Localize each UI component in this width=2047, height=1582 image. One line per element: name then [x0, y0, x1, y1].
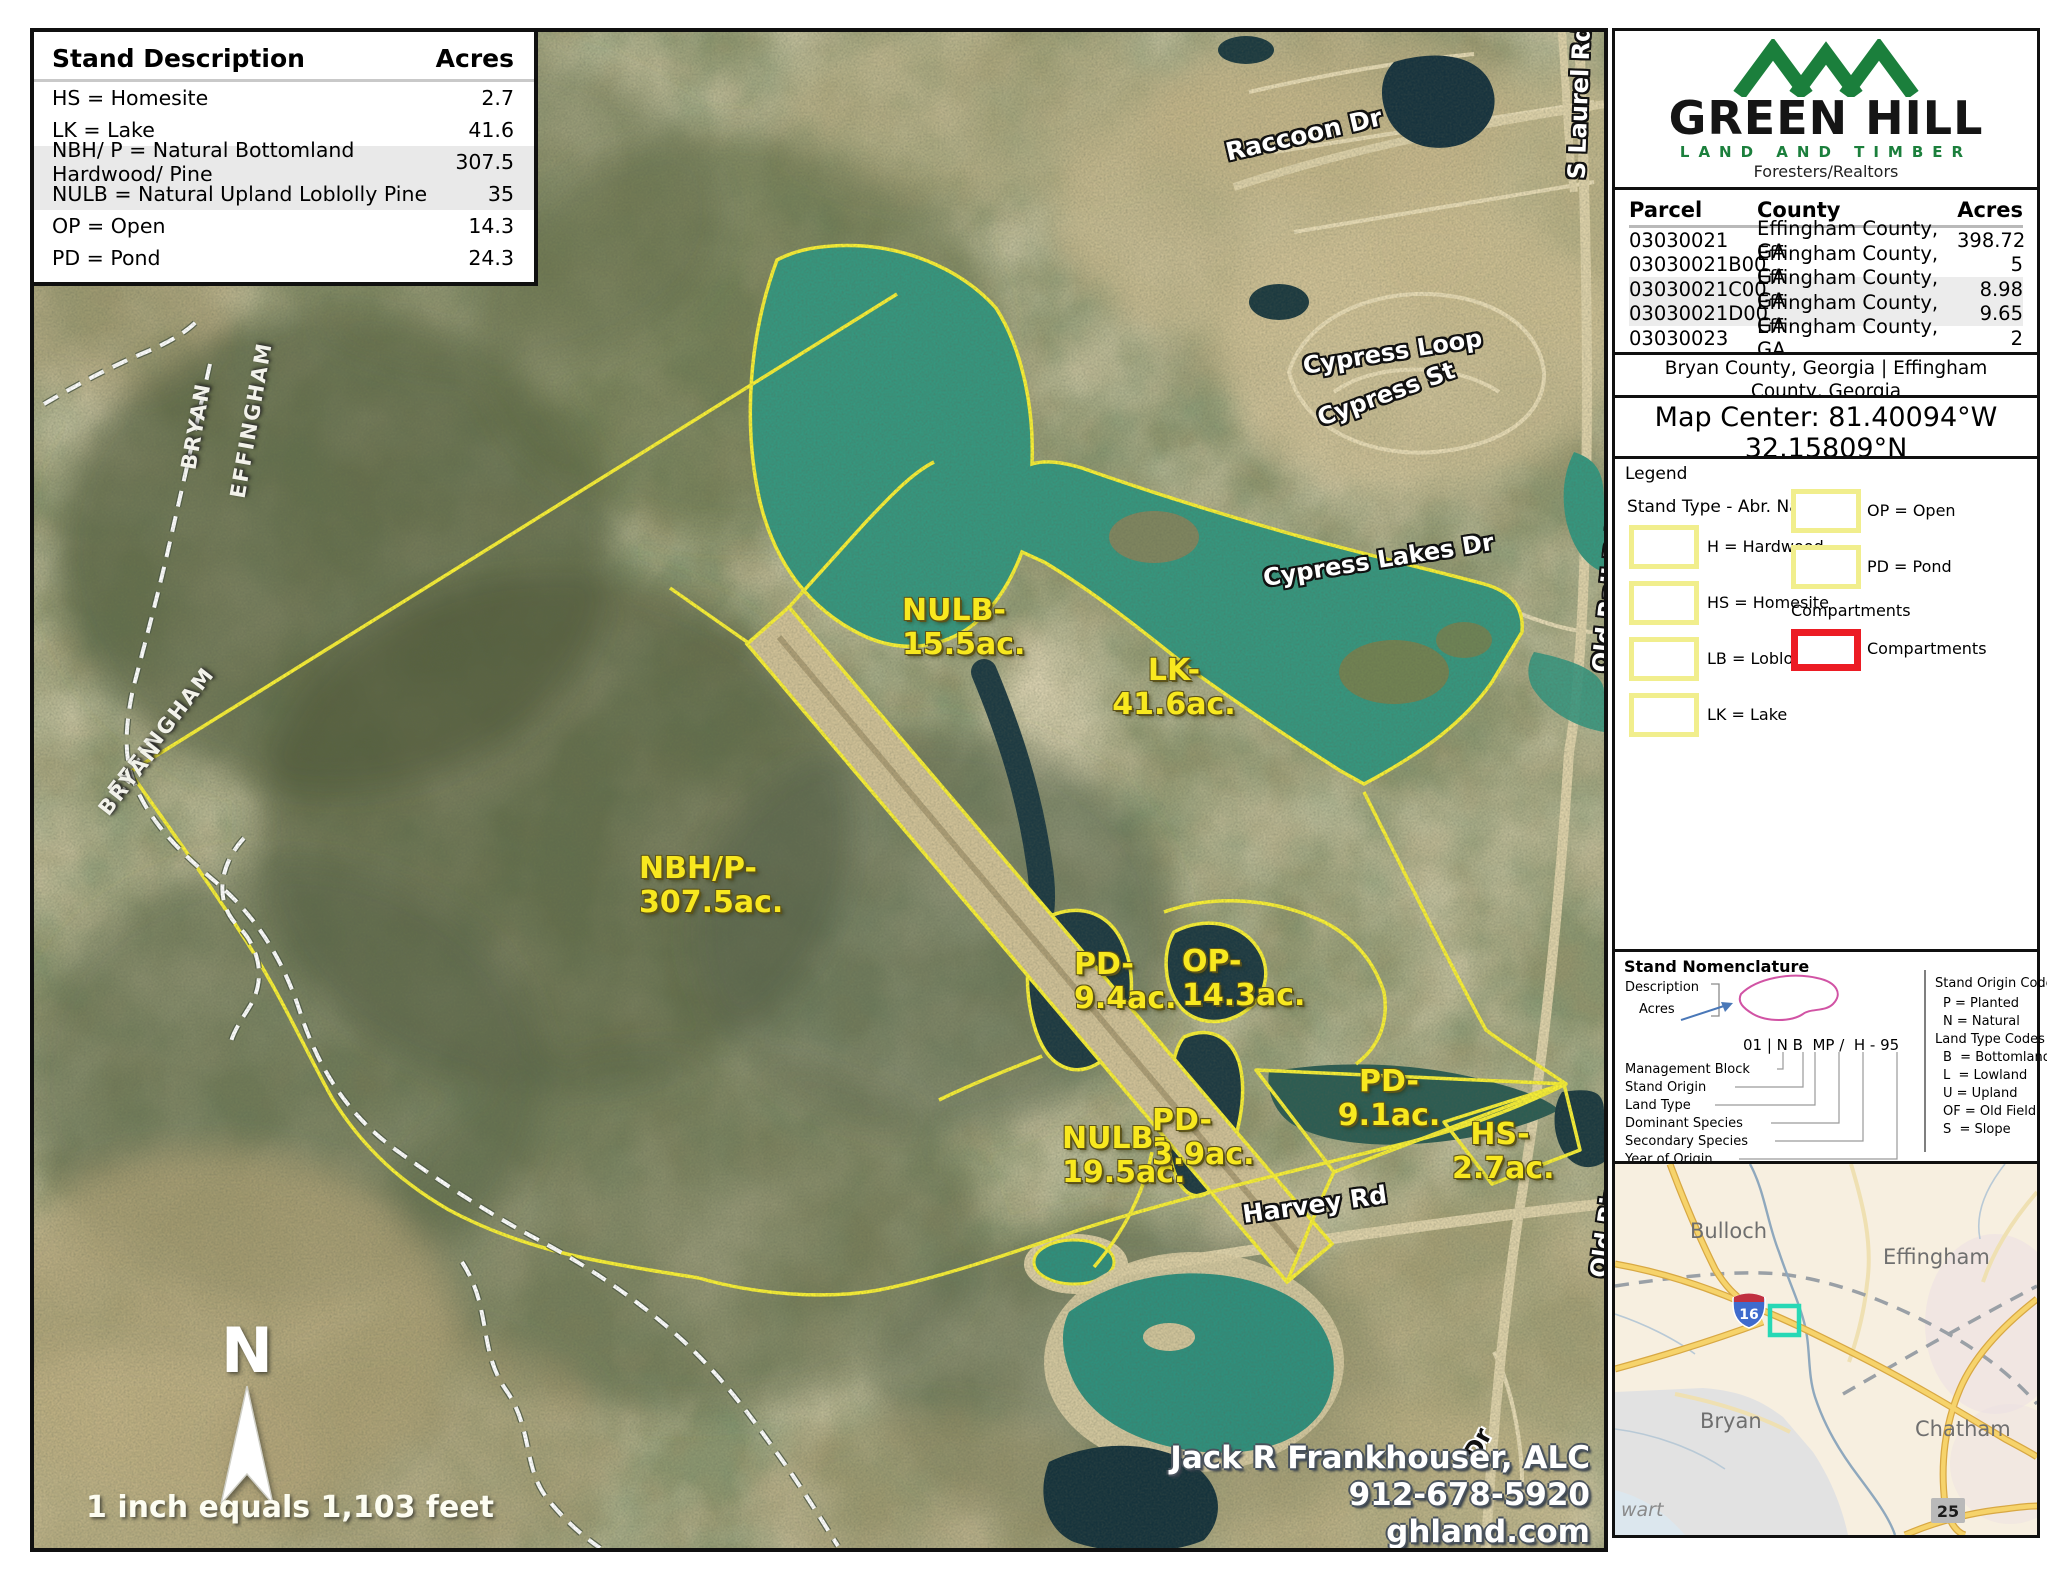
logo-box: GREEN HILL LAND AND TIMBER Foresters/Rea… [1612, 28, 2040, 190]
stand-nomenclature-box: Stand Nomenclature [1612, 949, 2040, 1164]
stand-label-line: 3.9ac. [1152, 1138, 1255, 1172]
stand-label-line: 9.1ac. [1329, 1099, 1449, 1133]
map-sheet: NULB- 15.5ac. LK- 41.6ac. NBH/P- 307.5ac… [0, 0, 2047, 1582]
table-row: 03030023 Effingham County, GA 2 [1629, 326, 2023, 351]
stand-label-nbhp-307: NBH/P- 307.5ac. [639, 852, 783, 919]
stand-row-acres: 14.3 [468, 214, 514, 238]
land-code: B = Bottomland [1943, 1050, 2047, 1065]
nomenclature-description-label: Description [1625, 980, 1699, 995]
nomenclature-label: Dominant Species [1625, 1116, 1743, 1131]
origin-code: N = Natural [1943, 1014, 2020, 1029]
legend-box: Legend Stand Type - Abr. Name H = Hardwo… [1612, 456, 2040, 952]
table-row: HS = Homesite 2.7 [34, 82, 534, 114]
parcel-acres: 9.65 [1957, 302, 2023, 325]
stand-row-label: PD = Pond [52, 246, 161, 270]
route-25-badge: 25 [1931, 1498, 1965, 1523]
stand-table-acres-header: Acres [436, 44, 514, 73]
stand-row-label: NBH/ P = Natural Bottomland Hardwood/ Pi… [52, 138, 447, 186]
acres-header: Acres [1957, 198, 2023, 222]
counties-line1: Bryan County, Georgia | Effingham [1615, 358, 2037, 381]
stand-description-table: Stand Description Acres HS = Homesite 2.… [30, 28, 538, 286]
origin-codes-title: Stand Origin Codes [1935, 976, 2047, 991]
inset-county-bulloch: Bulloch [1690, 1219, 1767, 1243]
table-row: NBH/ P = Natural Bottomland Hardwood/ Pi… [34, 146, 534, 178]
parcel-acres: 2 [1957, 327, 2023, 350]
land-code: L = Lowland [1943, 1068, 2027, 1083]
stand-label-line: 307.5ac. [639, 886, 783, 920]
counties-box: Bryan County, Georgia | Effingham County… [1612, 352, 2040, 398]
stand-row-acres: 2.7 [481, 86, 514, 110]
north-arrow-label: N [202, 1320, 292, 1382]
parcel-id: 03030021B00 [1629, 253, 1757, 276]
legend-item: Compartments [1867, 639, 1987, 658]
stand-label-op-143: OP- 14.3ac. [1182, 945, 1305, 1012]
parcel-acres: 398.72 [1957, 229, 2023, 252]
parcel-id: 03030023 [1629, 327, 1757, 350]
route-25-number: 25 [1937, 1502, 1959, 1521]
legend-swatch-loblolly [1629, 637, 1699, 681]
nomenclature-label: Stand Origin [1625, 1080, 1706, 1095]
parcel-id: 03030021D00 [1629, 302, 1757, 325]
parcel-acres: 5 [1957, 253, 2023, 276]
contact-phone: 912-678-5920 [1170, 1477, 1590, 1514]
land-codes-title: Land Type Codes [1935, 1032, 2045, 1047]
legend-title: Legend [1625, 464, 1687, 484]
legend-swatch-open [1791, 489, 1861, 533]
stand-row-label: NULB = Natural Upland Loblolly Pine [52, 182, 427, 206]
nomenclature-label: Secondary Species [1625, 1134, 1748, 1149]
land-code: OF = Old Field [1943, 1104, 2036, 1119]
stand-label-hs-27: HS- 2.7ac. [1452, 1118, 1548, 1185]
stand-label-line: 41.6ac. [1109, 688, 1239, 722]
stand-table-title: Stand Description [52, 44, 305, 73]
legend-item: LK = Lake [1707, 705, 1787, 724]
stand-label-line: NBH/P- [639, 852, 783, 886]
stand-label-line: OP- [1182, 945, 1305, 979]
stand-label-line: LK- [1109, 654, 1239, 688]
legend-compartments-heading: Compartments [1791, 601, 1911, 620]
stand-label-line: NULB- [902, 594, 1025, 628]
legend-item: PD = Pond [1867, 557, 1952, 576]
inset-county-bryan: Bryan [1700, 1409, 1762, 1433]
mountains-logo-icon [1731, 39, 1921, 97]
stand-table-header: Stand Description Acres [34, 40, 534, 82]
parcel-header: Parcel [1629, 198, 1757, 222]
stand-label-lk-41: LK- 41.6ac. [1109, 654, 1239, 721]
road-label-s-laurel-rd: S Laurel Rd [1563, 28, 1596, 180]
parcel-id: 03030021C00 [1629, 278, 1757, 301]
legend-swatch-pond [1791, 545, 1861, 589]
stand-label-line: 2.7ac. [1452, 1152, 1548, 1186]
legend-swatch-lake [1629, 693, 1699, 737]
inset-partial-label: wart [1621, 1499, 1665, 1521]
stand-label-nulb-15: NULB- 15.5ac. [902, 594, 1025, 661]
legend-swatch-compartments [1791, 629, 1861, 671]
land-code: U = Upland [1943, 1086, 2018, 1101]
legend-swatch-homesite [1629, 581, 1699, 625]
stand-row-acres: 307.5 [455, 150, 514, 174]
stand-label-line: PD- [1074, 948, 1177, 982]
stand-label-line: HS- [1452, 1118, 1548, 1152]
stand-row-acres: 41.6 [468, 118, 514, 142]
nomenclature-code: 01 | N B MP / H - 95 [1743, 1036, 1899, 1054]
interstate-16-number: 16 [1739, 1307, 1758, 1323]
nomenclature-acres-label: Acres [1639, 1002, 1675, 1017]
stand-label-line: 9.4ac. [1074, 982, 1177, 1016]
legend-swatch-hardwood [1629, 525, 1699, 569]
stand-label-line: 15.5ac. [902, 628, 1025, 662]
stand-label-line: PD- [1152, 1104, 1255, 1138]
info-panel: GREEN HILL LAND AND TIMBER Foresters/Rea… [1612, 28, 2040, 1538]
origin-code: P = Planted [1943, 996, 2019, 1011]
nomenclature-label: Management Block [1625, 1062, 1750, 1077]
table-row: NULB = Natural Upland Loblolly Pine 35 [34, 178, 534, 210]
inset-county-effingham: Effingham [1883, 1245, 1990, 1269]
brand-name: GREEN HILL [1615, 95, 2037, 141]
land-code: S = Slope [1943, 1122, 2011, 1137]
nomenclature-label: Land Type [1625, 1098, 1691, 1113]
brand-tagline: Foresters/Realtors [1615, 162, 2037, 181]
inset-locator-map: Bulloch Effingham Bryan Chatham wart 16 … [1612, 1161, 2040, 1538]
table-row: OP = Open 14.3 [34, 210, 534, 242]
inset-map-graphic: Bulloch Effingham Bryan Chatham wart 16 … [1615, 1164, 2037, 1535]
scale-text: 1 inch equals 1,103 feet [86, 1490, 494, 1525]
contact-block: Jack R Frankhouser, ALC 912-678-5920 ghl… [1170, 1440, 1590, 1552]
parcel-id: 03030021 [1629, 229, 1757, 252]
stand-label-pd-91: PD- 9.1ac. [1329, 1065, 1449, 1132]
stand-row-acres: 35 [488, 182, 514, 206]
map-center-box: Map Center: 81.40094°W 32.15809°N [1612, 395, 2040, 459]
parcel-table: Parcel County Acres 03030021 Effingham C… [1612, 187, 2040, 355]
map-center-line1: Map Center: 81.40094°W [1615, 402, 2037, 433]
contact-website: ghland.com [1170, 1514, 1590, 1551]
stand-label-pd-94: PD- 9.4ac. [1074, 948, 1177, 1015]
inset-county-chatham: Chatham [1915, 1417, 2011, 1441]
stand-label-line: PD- [1329, 1065, 1449, 1099]
stand-row-acres: 24.3 [468, 246, 514, 270]
brand-subtitle: LAND AND TIMBER [1615, 143, 2037, 161]
stand-label-line: 14.3ac. [1182, 979, 1305, 1013]
stand-row-label: OP = Open [52, 214, 165, 238]
contact-name: Jack R Frankhouser, ALC [1170, 1440, 1590, 1477]
table-row: PD = Pond 24.3 [34, 242, 534, 274]
parcel-acres: 8.98 [1957, 278, 2023, 301]
legend-item: OP = Open [1867, 501, 1956, 520]
stand-label-pd-39: PD- 3.9ac. [1152, 1104, 1255, 1171]
stand-row-label: HS = Homesite [52, 86, 208, 110]
